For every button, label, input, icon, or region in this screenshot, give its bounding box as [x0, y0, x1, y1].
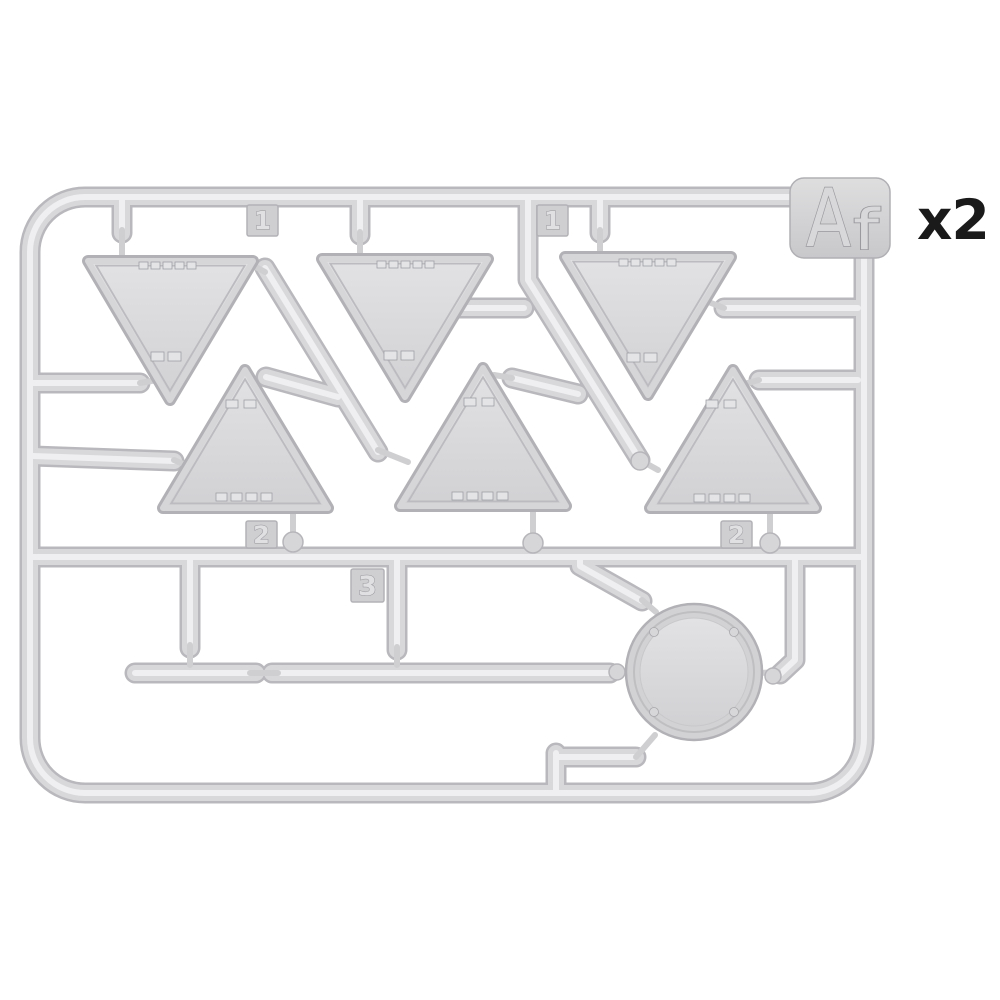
triangle-sign-down-2 — [322, 259, 488, 397]
quantity-label: x2 — [917, 188, 989, 252]
gate-tab-number: 2 — [253, 521, 270, 549]
gate-knob — [765, 668, 781, 684]
gate-tab-1a: 1 — [247, 205, 278, 236]
sprue-photo: 1 1 2 2 3 A f x2 — [0, 0, 1000, 1000]
gate-tab-2b: 2 — [721, 521, 752, 549]
gate-tab-number: 3 — [358, 571, 377, 602]
gate-tab-number: 1 — [254, 206, 271, 235]
sprue-id-letter-small: f — [853, 198, 881, 263]
gate-bulb — [760, 533, 780, 553]
gate-tab-number: 2 — [728, 521, 745, 549]
gate-tab-1b: 1 — [537, 205, 568, 236]
triangle-sign-up-3 — [650, 370, 816, 508]
gate-knob — [631, 452, 649, 470]
gate-bulb — [523, 533, 543, 553]
gate-knob — [609, 664, 625, 680]
gate-bulb — [283, 532, 303, 552]
product-image: 1 1 2 2 3 A f x2 — [0, 0, 1000, 1000]
gate-tab-3: 3 — [351, 569, 384, 602]
round-sign — [626, 604, 762, 740]
sprue-id-plate: A f — [790, 172, 890, 265]
gate-tab-number: 1 — [544, 206, 561, 235]
sprue-id-letter-large: A — [806, 172, 851, 265]
gate-tab-2a: 2 — [246, 521, 277, 549]
